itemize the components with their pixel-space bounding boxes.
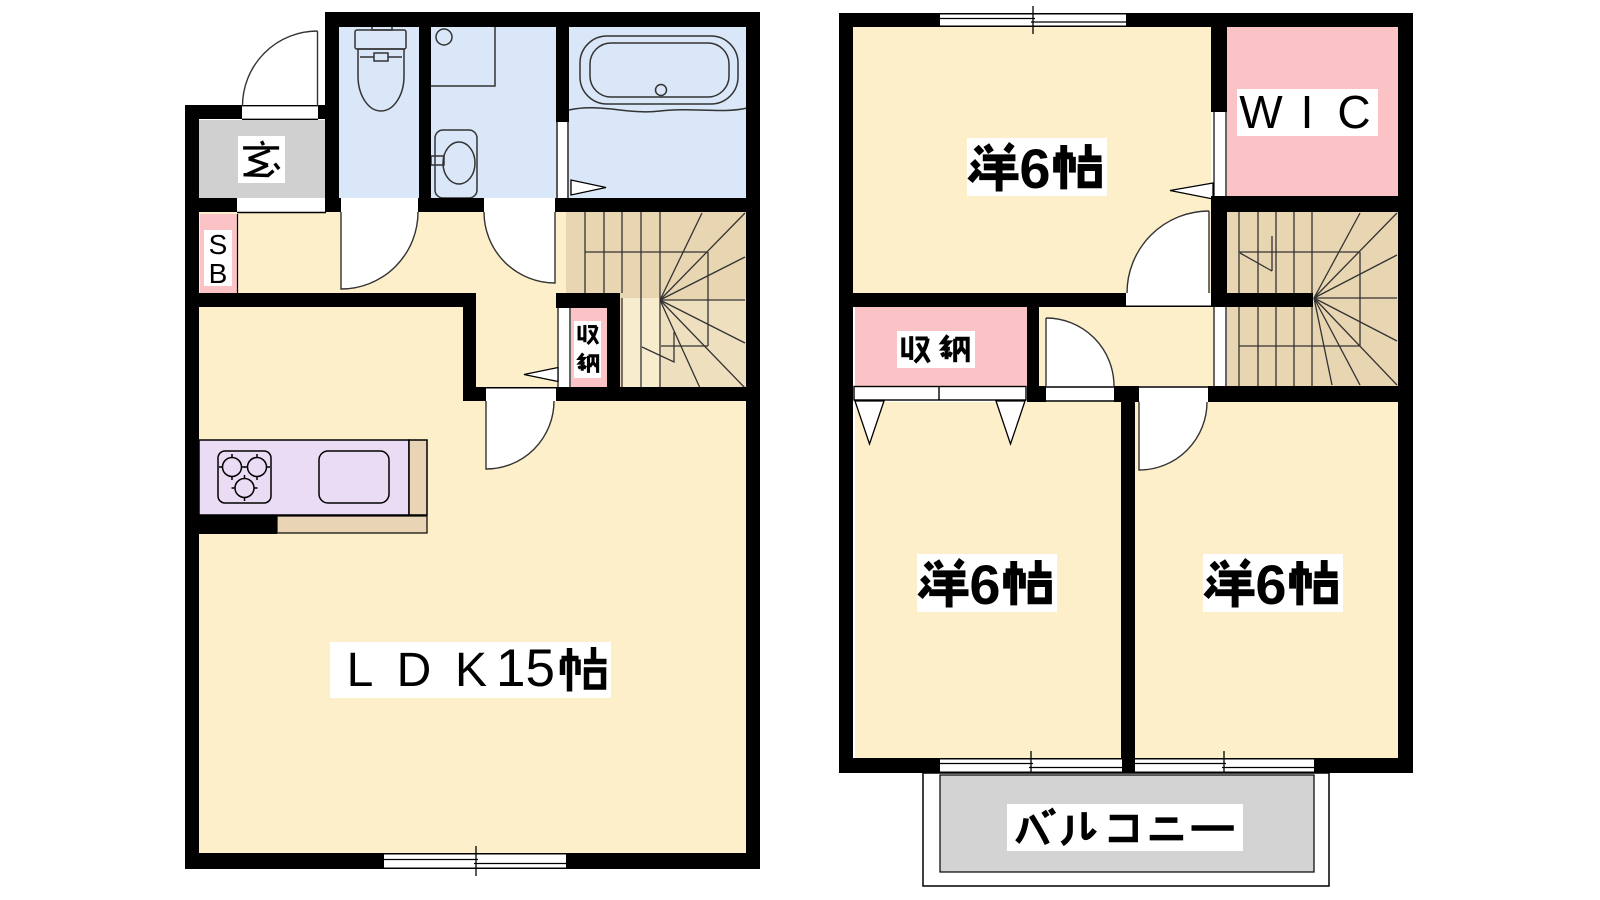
svg-text:S: S bbox=[209, 229, 228, 260]
svg-text:WIC: WIC bbox=[1239, 86, 1370, 138]
svg-text:B: B bbox=[209, 258, 228, 289]
svg-text:LDK: LDK bbox=[347, 644, 487, 697]
svg-text:6: 6 bbox=[1019, 137, 1050, 200]
svg-text:6: 6 bbox=[1255, 553, 1286, 616]
svg-text:15: 15 bbox=[496, 639, 555, 698]
svg-text:6: 6 bbox=[969, 553, 1000, 616]
